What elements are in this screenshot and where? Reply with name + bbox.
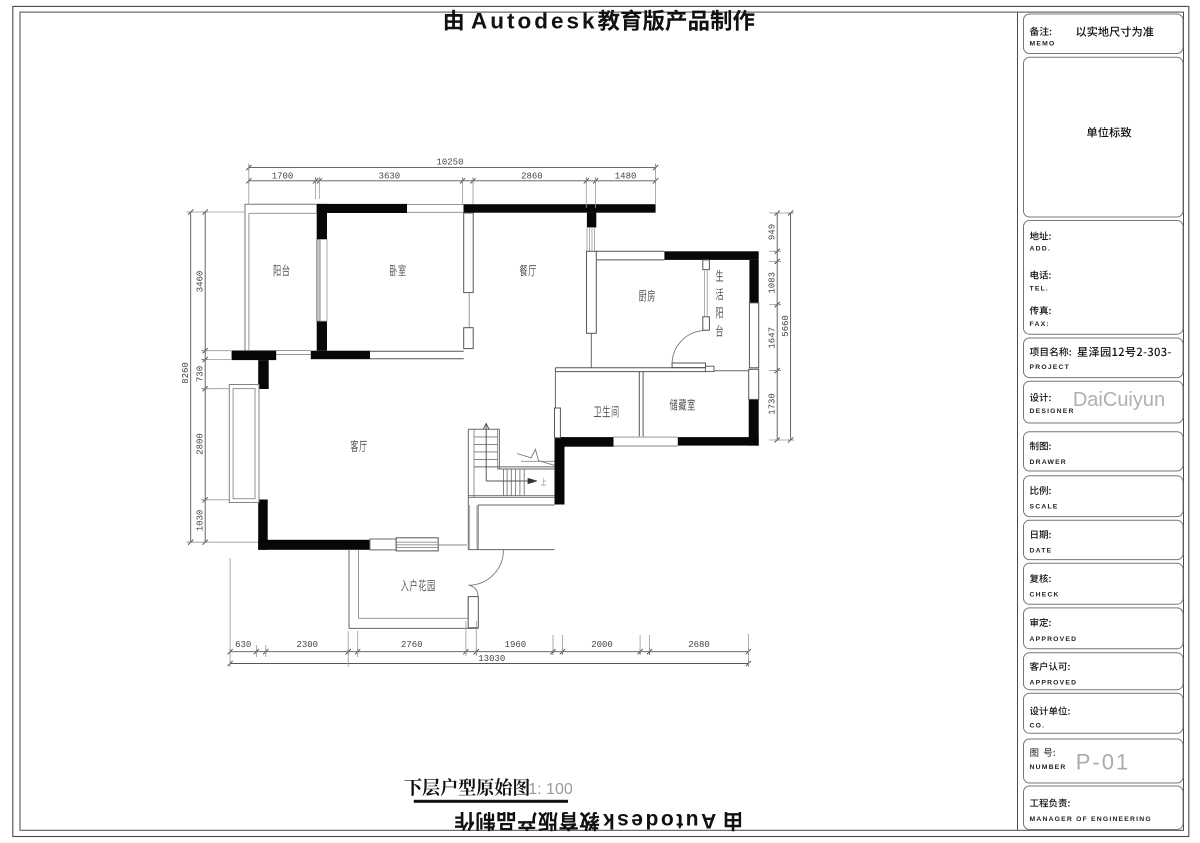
svg-text:Autodesk: Autodesk — [601, 809, 717, 832]
svg-text:2300: 2300 — [296, 640, 318, 650]
svg-text:2800: 2800 — [195, 433, 205, 455]
svg-text:1700: 1700 — [272, 171, 294, 181]
svg-text:APPROVED: APPROVED — [1030, 680, 1078, 687]
svg-text:APPROVED: APPROVED — [1030, 636, 1078, 643]
svg-text:TEL.: TEL. — [1030, 286, 1050, 293]
svg-text:13030: 13030 — [478, 654, 505, 664]
svg-text:10250: 10250 — [436, 158, 463, 168]
svg-text:ADD.: ADD. — [1030, 246, 1051, 253]
svg-text:SCALE: SCALE — [1030, 503, 1059, 510]
svg-text:3460: 3460 — [195, 271, 205, 293]
svg-text:1: 100: 1: 100 — [528, 781, 573, 798]
svg-text:1083: 1083 — [767, 272, 777, 294]
svg-text:DESIGNER: DESIGNER — [1030, 408, 1075, 415]
svg-text:P-01: P-01 — [1076, 750, 1130, 775]
svg-text:DATE: DATE — [1030, 548, 1053, 555]
svg-text:1730: 1730 — [767, 393, 777, 415]
svg-text:2860: 2860 — [521, 171, 543, 181]
svg-text:Autodesk: Autodesk — [471, 9, 598, 34]
svg-text:2000: 2000 — [591, 640, 613, 650]
svg-text:1030: 1030 — [195, 510, 205, 532]
svg-text:1960: 1960 — [505, 640, 527, 650]
svg-text:PROJECT: PROJECT — [1030, 364, 1071, 371]
svg-text:1480: 1480 — [615, 171, 637, 181]
svg-text:5660: 5660 — [781, 315, 791, 337]
svg-text:FAX:: FAX: — [1030, 321, 1050, 328]
svg-text:730: 730 — [195, 366, 205, 382]
svg-text:1647: 1647 — [767, 327, 777, 349]
svg-text:2680: 2680 — [688, 640, 710, 650]
svg-text:CO.: CO. — [1030, 722, 1046, 729]
svg-text:2760: 2760 — [401, 640, 423, 650]
svg-text:DRAWER: DRAWER — [1030, 459, 1067, 466]
svg-text:3630: 3630 — [379, 171, 401, 181]
svg-text:CHECK: CHECK — [1030, 591, 1060, 598]
svg-text:MEMO: MEMO — [1030, 41, 1056, 48]
svg-text:DaiCuiyun: DaiCuiyun — [1073, 389, 1165, 411]
svg-text:630: 630 — [235, 640, 251, 650]
svg-text:NUMBER: NUMBER — [1030, 764, 1067, 771]
svg-text:949: 949 — [767, 224, 777, 240]
svg-text:MANAGER OF ENGINEERING: MANAGER OF ENGINEERING — [1030, 816, 1152, 823]
svg-text:8260: 8260 — [181, 362, 191, 384]
